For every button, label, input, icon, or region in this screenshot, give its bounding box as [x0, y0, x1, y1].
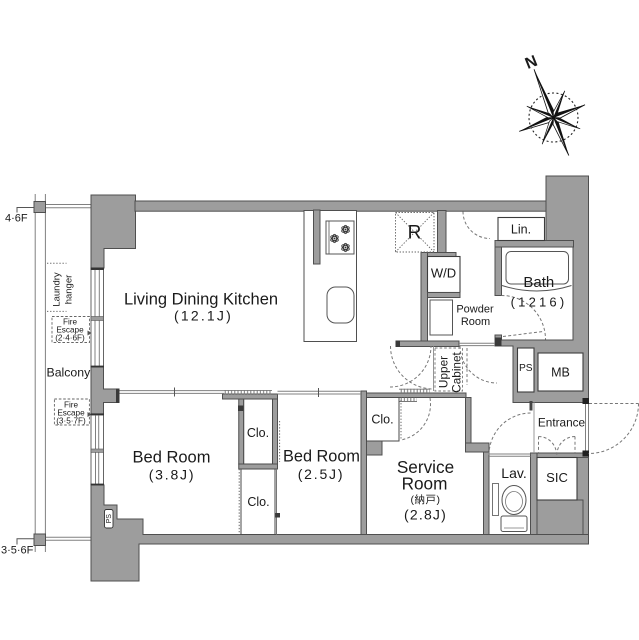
svg-text:Clo.: Clo.	[247, 426, 269, 440]
svg-text:Laundry: Laundry	[52, 272, 63, 307]
svg-text:Balcony: Balcony	[47, 366, 92, 380]
svg-text:(12.1J): (12.1J)	[174, 308, 233, 324]
svg-text:3·5·6F: 3·5·6F	[1, 545, 34, 557]
svg-text:(納戸): (納戸)	[411, 493, 441, 506]
svg-text:hanger: hanger	[64, 275, 75, 305]
svg-text:4·6F: 4·6F	[5, 213, 28, 225]
svg-text:Bed Room: Bed Room	[283, 448, 360, 466]
svg-text:Lin.: Lin.	[511, 223, 531, 237]
svg-text:Entrance: Entrance	[538, 416, 586, 430]
svg-text:Upper: Upper	[437, 356, 451, 388]
svg-text:Bed Room: Bed Room	[133, 449, 211, 467]
svg-text:(2.5J): (2.5J)	[298, 466, 345, 482]
svg-text:W/D: W/D	[431, 266, 456, 281]
svg-text:SIC: SIC	[546, 470, 568, 485]
svg-text:(2·4·6F): (2·4·6F)	[55, 334, 85, 343]
svg-text:Bath: Bath	[523, 274, 554, 291]
svg-text:PS: PS	[519, 363, 533, 374]
svg-text:MB: MB	[551, 366, 570, 380]
svg-text:Living Dining Kitchen: Living Dining Kitchen	[124, 291, 278, 309]
svg-text:Room: Room	[461, 316, 490, 328]
svg-text:Clo.: Clo.	[247, 495, 269, 509]
svg-text:Powder: Powder	[456, 304, 494, 316]
svg-text:(3·5·7F): (3·5·7F)	[56, 417, 86, 426]
svg-text:Room: Room	[402, 474, 448, 494]
svg-text:(2.8J): (2.8J)	[404, 507, 447, 523]
svg-text:PS: PS	[106, 514, 113, 524]
svg-text:R: R	[408, 223, 422, 244]
svg-text:(3.8J): (3.8J)	[149, 467, 196, 483]
svg-text:Clo.: Clo.	[371, 413, 393, 427]
svg-text:Lav.: Lav.	[501, 465, 526, 481]
svg-text:(1216): (1216)	[511, 295, 568, 310]
